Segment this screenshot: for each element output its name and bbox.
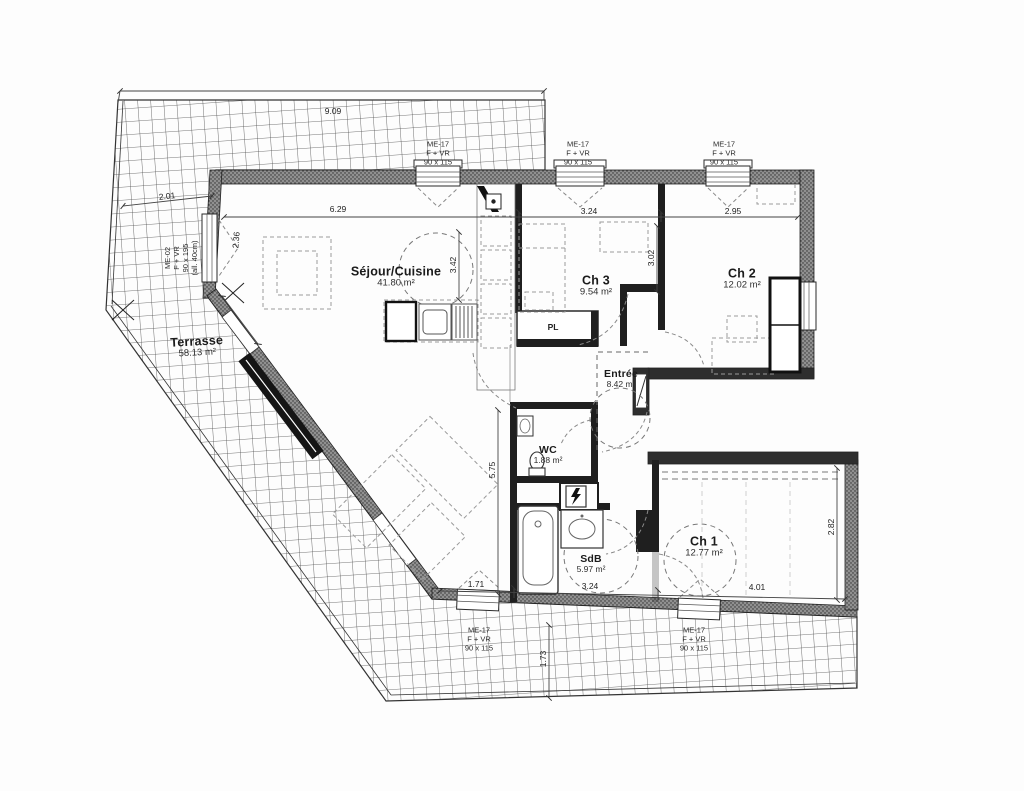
closet-label: PL [548, 322, 559, 332]
room-area: 1.88 m² [534, 456, 563, 466]
joinery-size: 90 x 115 [680, 644, 708, 653]
dim-sdb-width: 3.24 [582, 581, 599, 591]
joinery-ref: ME-17 [465, 626, 493, 635]
dim-terrace-bottom: 1.73 [538, 651, 548, 668]
room-label-entree: Entrée 8.42 m² [604, 368, 638, 390]
joinery-size: 90 x 195 [181, 240, 190, 275]
room-label-wc: WC 1.88 m² [534, 444, 563, 466]
fixtures [386, 186, 800, 594]
joinery-ref: ME-02 [163, 240, 172, 275]
room-area: 5.97 m² [577, 565, 606, 575]
room-label-sejour-cuisine: Séjour/Cuisine 41.80 m² [351, 264, 441, 289]
window-label-me17-top-1: ME-17 F + VR 90 x 115 [424, 140, 452, 167]
dim-ch3-depth: 3.02 [646, 250, 656, 267]
joinery-size: 90 x 115 [710, 158, 738, 167]
window-label-me17-bottom-2: ME-17 F + VR 90 x 115 [680, 626, 708, 653]
room-area: 9.54 m² [580, 288, 612, 299]
dim-ch1-width: 4.01 [749, 582, 766, 592]
dim-sejour-width: 6.29 [330, 204, 347, 214]
joinery-type: F + VR [465, 635, 493, 644]
dim-ch2-width: 2.95 [725, 206, 742, 216]
room-area: 41.80 m² [351, 279, 441, 290]
room-name: Ch 2 [723, 266, 761, 280]
room-label-ch3: Ch 3 9.54 m² [580, 273, 612, 298]
floorplan-drawing [0, 0, 1024, 791]
room-area: 8.42 m² [604, 380, 638, 390]
room-label-ch2: Ch 2 12.02 m² [723, 266, 761, 291]
room-name: Séjour/Cuisine [351, 264, 441, 278]
dim-top-overall: 9.09 [325, 106, 342, 116]
room-area: 12.77 m² [685, 549, 723, 560]
joinery-size: 90 x 115 [465, 644, 493, 653]
dim-left-wall: 2.36 [230, 231, 241, 248]
joinery-ref: ME-17 [424, 140, 452, 149]
joinery-note: (all. 40cm) [190, 240, 199, 275]
window-label-me17-bottom-1: ME-17 F + VR 90 x 115 [465, 626, 493, 653]
window-label-me02-left: ME-02 F + VR 90 x 195 (all. 40cm) [163, 240, 199, 275]
joinery-type: F + VR [172, 240, 181, 275]
room-name: Ch 3 [580, 273, 612, 287]
joinery-size: 90 x 115 [424, 158, 452, 167]
room-label-sdb: SdB 5.97 m² [577, 553, 606, 575]
joinery-type: F + VR [424, 149, 452, 158]
dim-bottom-left: 1.71 [468, 579, 485, 589]
room-name: Ch 1 [685, 534, 723, 548]
floorplan-page: Terrasse 58.13 m² Séjour/Cuisine 41.80 m… [0, 0, 1024, 791]
joinery-ref: ME-17 [564, 140, 592, 149]
joinery-type: F + VR [710, 149, 738, 158]
joinery-type: F + VR [564, 149, 592, 158]
room-label-ch1: Ch 1 12.77 m² [685, 534, 723, 559]
dim-ch3-width: 3.24 [581, 206, 598, 216]
joinery-size: 90 x 115 [564, 158, 592, 167]
dim-sejour-depth: 3.42 [448, 257, 458, 274]
joinery-type: F + VR [680, 635, 708, 644]
room-area: 12.02 m² [723, 281, 761, 292]
dim-wet-depth: 5.75 [487, 462, 497, 479]
window-label-me17-top-2: ME-17 F + VR 90 x 115 [564, 140, 592, 167]
dim-ch1-depth: 2.82 [826, 519, 836, 536]
room-label-terrasse: Terrasse 58.13 m² [170, 333, 224, 361]
window-label-me17-top-3: ME-17 F + VR 90 x 115 [710, 140, 738, 167]
joinery-ref: ME-17 [680, 626, 708, 635]
dim-terrace-left: 2.01 [158, 190, 176, 202]
joinery-ref: ME-17 [710, 140, 738, 149]
